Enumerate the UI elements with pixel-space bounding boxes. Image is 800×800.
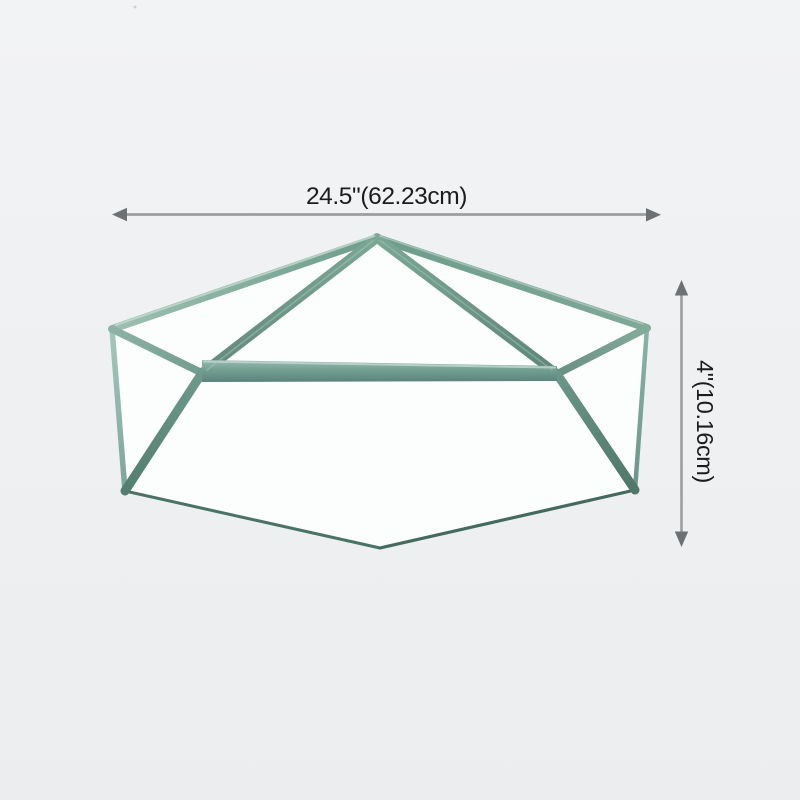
product-dimension-image: 24.5"(62.23cm) 4"(10.16cm) xyxy=(0,0,800,800)
dimension-diagram-canvas: 24.5"(62.23cm) 4"(10.16cm) xyxy=(0,0,800,800)
dust-speck xyxy=(134,6,137,9)
height-dimension-label: 4"(10.16cm) xyxy=(692,360,718,483)
width-dimension-label: 24.5"(62.23cm) xyxy=(306,183,467,210)
